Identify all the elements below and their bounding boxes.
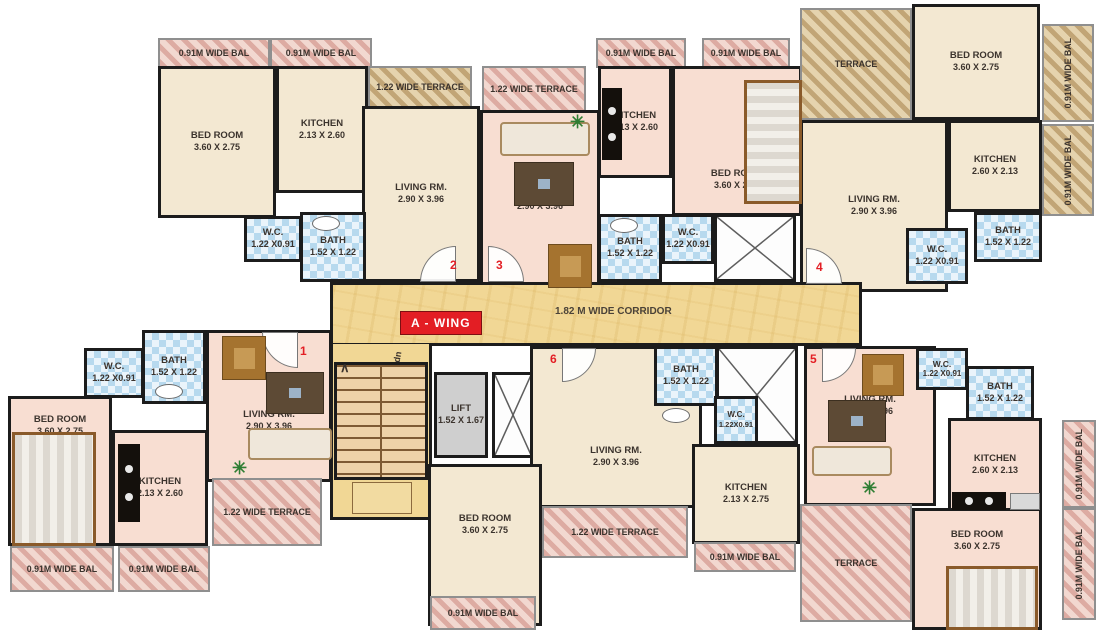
room-label: KITCHEN	[301, 118, 343, 130]
room-label: BATH	[617, 236, 643, 248]
flat4-balcony-1: 0.91M WIDE BAL	[1042, 24, 1094, 122]
flat4-kitchen: KITCHEN 2.60 X 2.13	[948, 120, 1042, 212]
balcony-label: 0.91M WIDE BAL	[129, 564, 199, 575]
bed-icon	[12, 432, 96, 546]
flat5-terrace: TERRACE	[800, 504, 912, 622]
duct-x-icon	[717, 217, 793, 279]
room-dims: 1.22X0.91	[719, 420, 753, 429]
terrace-label: TERRACE	[835, 558, 878, 569]
room-dims: 2.60 X 2.13	[972, 465, 1018, 476]
room-label: W.C.	[927, 244, 948, 256]
flat2-kitchen: KITCHEN 2.13 X 2.60	[276, 66, 368, 193]
room-label: W.C.	[933, 359, 951, 370]
stair-flight	[380, 365, 425, 477]
room-label: BATH	[161, 355, 187, 367]
room-label: BED ROOM	[191, 130, 243, 142]
room-dims: 2.13 X 2.75	[723, 494, 769, 505]
room-dims: 2.13 X 2.60	[137, 488, 183, 499]
plant-icon: ✳	[862, 478, 877, 499]
flat4-wc: W.C. 1.22 X0.91	[906, 228, 968, 284]
flat4-bedroom: BED ROOM 3.60 X 2.75	[912, 4, 1040, 120]
flat5-balcony-1: 0.91M WIDE BAL	[1062, 420, 1096, 508]
balcony-label: 0.91M WIDE BAL	[1074, 529, 1085, 599]
duct-x-icon	[495, 375, 531, 455]
room-label: LIVING RM.	[848, 194, 900, 206]
stove-icon	[952, 492, 1006, 510]
room-label: BATH	[673, 364, 699, 376]
lift-dims: 1.52 X 1.67	[438, 415, 484, 426]
flat3-wc: W.C. 1.22 X0.91	[662, 214, 714, 264]
room-label: BED ROOM	[951, 529, 1003, 541]
flat1-wc: W.C. 1.22 X0.91	[84, 348, 144, 398]
room-label: BED ROOM	[950, 50, 1002, 62]
balcony-label: 0.91M WIDE BAL	[710, 552, 780, 563]
lift: LIFT 1.52 X 1.67	[434, 372, 488, 458]
flat6-wc: W.C. 1.22X0.91	[714, 396, 758, 444]
terrace-label: 1.22 WIDE TERRACE	[571, 527, 659, 538]
flat1-balcony-1: 0.91M WIDE BAL	[10, 546, 114, 592]
duct-shaft	[492, 372, 534, 458]
floor-plan: 0.91M WIDE BAL 0.91M WIDE BAL BED ROOM 3…	[0, 0, 1100, 636]
room-label: W.C.	[678, 227, 699, 239]
balcony-label: 0.91M WIDE BAL	[1074, 429, 1085, 499]
stair-up-arrow-icon: ∧	[340, 360, 350, 376]
flat2-bedroom: BED ROOM 3.60 X 2.75	[158, 66, 276, 218]
room-dims: 3.60 X 2.75	[953, 62, 999, 73]
flat2-living: LIVING RM. 2.90 X 3.96	[362, 106, 480, 282]
flat-number: 4	[816, 260, 823, 274]
room-dims: 1.22 X0.91	[923, 369, 962, 379]
plant-icon: ✳	[570, 112, 585, 133]
terrace-label: 1.22 WIDE TERRACE	[223, 507, 311, 518]
flat6-bath: BATH 1.52 X 1.22	[654, 346, 718, 406]
room-label: W.C.	[104, 361, 125, 373]
flat6-terrace: 1.22 WIDE TERRACE	[542, 506, 688, 558]
balcony-label: 0.91M WIDE BAL	[606, 48, 676, 59]
stair-direction-label: dn	[392, 351, 404, 364]
room-dims: 2.90 X 3.96	[851, 206, 897, 217]
room-dims: 2.60 X 2.13	[972, 166, 1018, 177]
dining-table-icon	[862, 354, 904, 396]
room-dims: 1.52 X 1.22	[985, 237, 1031, 248]
balcony-label: 0.91M WIDE BAL	[1063, 38, 1074, 108]
flat-number: 1	[300, 344, 307, 358]
flat5-balcony-2: 0.91M WIDE BAL	[1062, 508, 1096, 620]
room-dims: 1.52 X 1.22	[607, 248, 653, 259]
room-dims: 2.90 X 3.96	[593, 457, 639, 468]
terrace-label: 1.22 WIDE TERRACE	[376, 82, 464, 93]
flat3-balcony-2: 0.91M WIDE BAL	[702, 38, 790, 68]
room-label: LIVING RM.	[395, 182, 447, 194]
flat-number: 3	[496, 258, 503, 272]
room-dims: 2.90 X 3.96	[398, 194, 444, 205]
dining-table-icon	[222, 336, 266, 380]
flat-number: 2	[450, 258, 457, 272]
balcony-label: 0.91M WIDE BAL	[711, 48, 781, 59]
flat5-wc: W.C. 1.22 X0.91	[916, 348, 968, 390]
room-dims: 1.52 X 1.22	[977, 393, 1023, 404]
balcony-label: 0.91M WIDE BAL	[27, 564, 97, 575]
flat6-balcony-1: 0.91M WIDE BAL	[430, 596, 536, 630]
room-label: KITCHEN	[139, 476, 181, 488]
room-label: BED ROOM	[34, 414, 86, 426]
stair-flight	[337, 365, 380, 477]
room-dims: 3.60 X 2.75	[194, 142, 240, 153]
bed-icon	[744, 80, 802, 204]
sofa-icon	[812, 446, 892, 476]
toilet-icon	[662, 408, 690, 423]
flat6-kitchen: KITCHEN 2.13 X 2.75	[692, 444, 800, 544]
bed-icon	[946, 566, 1038, 630]
stove-icon	[118, 444, 140, 522]
sofa-icon	[248, 428, 332, 460]
dining-table-icon	[548, 244, 592, 288]
stair-landing	[352, 482, 412, 514]
room-label: KITCHEN	[974, 154, 1016, 166]
tv-unit-icon	[828, 400, 886, 442]
room-dims: 3.60 X 2.75	[462, 525, 508, 536]
balcony-label: 0.91M WIDE BAL	[1063, 135, 1074, 205]
toilet-icon	[312, 216, 340, 231]
tv-unit-icon	[266, 372, 324, 414]
room-label: BATH	[320, 235, 346, 247]
room-label: W.C.	[263, 227, 284, 239]
room-label: LIVING RM.	[590, 445, 642, 457]
flat3-balcony-1: 0.91M WIDE BAL	[596, 38, 686, 68]
wing-badge: A - WING	[400, 311, 482, 335]
room-dims: 1.22 X0.91	[915, 256, 959, 267]
flat1-balcony-2: 0.91M WIDE BAL	[118, 546, 210, 592]
room-dims: 2.13 X 2.60	[299, 130, 345, 141]
room-label: W.C.	[727, 410, 744, 420]
terrace-label: 1.22 WIDE TERRACE	[490, 84, 578, 95]
corridor-label: 1.82 M WIDE CORRIDOR	[555, 306, 672, 317]
flat4-balcony-2: 0.91M WIDE BAL	[1042, 124, 1094, 216]
flat6-balcony-2: 0.91M WIDE BAL	[694, 542, 796, 572]
flat-number: 5	[810, 352, 817, 366]
room-dims: 1.52 X 1.22	[151, 367, 197, 378]
flat2-terrace: 1.22 WIDE TERRACE	[368, 66, 472, 108]
room-dims: 1.52 X 1.22	[663, 376, 709, 387]
room-label: BED ROOM	[459, 513, 511, 525]
flat3-terrace: 1.22 WIDE TERRACE	[482, 66, 586, 112]
room-label: KITCHEN	[725, 482, 767, 494]
toilet-icon	[610, 218, 638, 233]
room-label: BATH	[995, 225, 1021, 237]
tv-unit-icon	[514, 162, 574, 206]
staircase	[334, 362, 428, 480]
room-dims: 1.22 X0.91	[92, 373, 136, 384]
stove-icon	[602, 88, 622, 160]
toilet-icon	[155, 384, 183, 399]
room-dims: 1.52 X 1.22	[310, 247, 356, 258]
flat1-terrace: 1.22 WIDE TERRACE	[212, 478, 322, 546]
flat2-wc: W.C. 1.22 X0.91	[244, 216, 302, 262]
sink-icon	[1010, 493, 1040, 510]
balcony-label: 0.91M WIDE BAL	[179, 48, 249, 59]
flat4-bath: BATH 1.52 X 1.22	[974, 212, 1042, 262]
room-label: KITCHEN	[974, 453, 1016, 465]
duct-shaft	[714, 214, 796, 282]
balcony-label: 0.91M WIDE BAL	[448, 608, 518, 619]
flat2-balcony-1: 0.91M WIDE BAL	[158, 38, 270, 68]
flat5-bath: BATH 1.52 X 1.22	[966, 366, 1034, 420]
room-dims: 1.22 X0.91	[251, 239, 295, 250]
room-dims: 3.60 X 2.75	[954, 541, 1000, 552]
plant-icon: ✳	[232, 458, 247, 479]
terrace-label: TERRACE	[835, 59, 878, 70]
balcony-label: 0.91M WIDE BAL	[286, 48, 356, 59]
flat2-balcony-2: 0.91M WIDE BAL	[270, 38, 372, 68]
lift-label: LIFT	[451, 403, 471, 415]
room-label: BATH	[987, 381, 1013, 393]
flat-number: 6	[550, 352, 557, 366]
room-dims: 1.22 X0.91	[666, 239, 710, 250]
flat4-terrace: TERRACE	[800, 8, 912, 120]
